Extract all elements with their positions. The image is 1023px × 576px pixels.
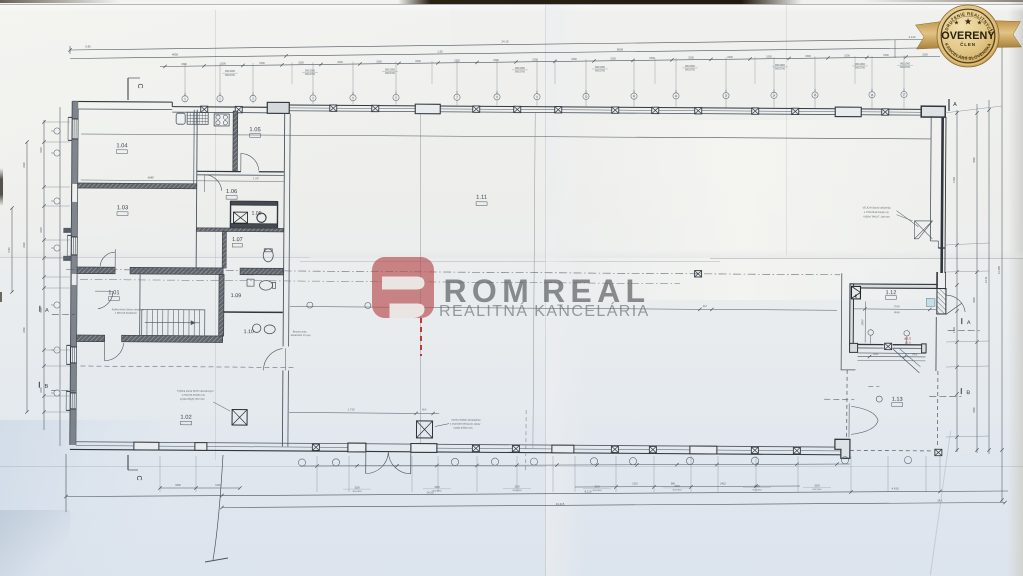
svg-text:1500: 1500 <box>766 55 772 58</box>
svg-text:1940: 1940 <box>873 353 879 356</box>
svg-text:1500: 1500 <box>649 57 655 60</box>
svg-text:900/2760: 900/2760 <box>515 70 526 73</box>
svg-text:2410: 2410 <box>720 483 726 486</box>
svg-text:ČLEN: ČLEN <box>960 41 976 47</box>
svg-text:1500: 1500 <box>298 61 304 64</box>
svg-text:24.10: 24.10 <box>502 40 509 44</box>
svg-text:1.10: 1.10 <box>244 329 254 335</box>
svg-text:VISKA TAVLIT 100 mm: VISKA TAVLIT 100 mm <box>863 214 890 218</box>
svg-text:1.13: 1.13 <box>892 397 903 403</box>
svg-text:vyska tehliet mm: vyska tehliet mm <box>453 426 472 430</box>
svg-text:1.02: 1.02 <box>180 415 191 421</box>
svg-text:keramicke 10 mm: keramicke 10 mm <box>291 334 311 337</box>
svg-text:900/2760: 900/2760 <box>595 70 606 73</box>
svg-text:1500: 1500 <box>805 55 811 58</box>
svg-text:900/1960: 900/1960 <box>752 489 762 491</box>
svg-text:1800: 1800 <box>175 484 181 487</box>
svg-text:1500: 1500 <box>454 59 460 62</box>
svg-text:murivo lepiaci prestavkov: murivo lepiaci prestavkov <box>452 418 482 422</box>
svg-text:1500: 1500 <box>532 58 538 61</box>
svg-text:1.11: 1.11 <box>476 195 487 201</box>
svg-text:C: C <box>136 83 143 88</box>
svg-text:1500: 1500 <box>434 486 440 489</box>
svg-text:3636: 3636 <box>894 310 900 314</box>
svg-text:1500: 1500 <box>259 62 265 65</box>
svg-text:900/2760: 900/2760 <box>685 69 696 72</box>
svg-text:960/1960: 960/1960 <box>775 64 786 67</box>
svg-text:960/1960: 960/1960 <box>385 68 396 71</box>
svg-text:5680: 5680 <box>973 157 976 163</box>
svg-text:2.860: 2.860 <box>953 326 956 333</box>
svg-text:OVERENÝ: OVERENÝ <box>941 29 995 42</box>
svg-text:1210: 1210 <box>632 483 638 486</box>
svg-text:2440: 2440 <box>23 162 26 168</box>
svg-text:B: B <box>966 390 970 396</box>
svg-text:1.12: 1.12 <box>886 290 897 296</box>
svg-text:900/1960: 900/1960 <box>512 490 522 492</box>
svg-text:1.09: 1.09 <box>231 293 242 299</box>
svg-text:1500: 1500 <box>610 57 616 60</box>
svg-text:1500: 1500 <box>844 54 850 57</box>
svg-text:8.110: 8.110 <box>585 490 592 494</box>
svg-text:1.08: 1.08 <box>251 211 261 217</box>
svg-text:1000: 1000 <box>912 353 918 356</box>
svg-text:★: ★ <box>954 20 960 27</box>
svg-text:1.50: 1.50 <box>253 176 259 180</box>
svg-text:2860: 2860 <box>860 319 864 325</box>
svg-text:1.50: 1.50 <box>437 50 443 54</box>
svg-text:900/2760: 900/2760 <box>855 67 866 70</box>
svg-text:2440: 2440 <box>23 327 26 333</box>
svg-text:1500: 1500 <box>883 54 889 57</box>
svg-text:900/2760: 900/2760 <box>385 72 396 75</box>
svg-text:vyska Skrytý 300 mm: vyska Skrytý 300 mm <box>180 397 205 401</box>
svg-text:1500: 1500 <box>415 60 421 63</box>
svg-text:960/1960: 960/1960 <box>855 63 866 66</box>
svg-text:1500: 1500 <box>571 58 577 61</box>
svg-text:VEJCIA Sachy delizenia: VEJCIA Sachy delizenia <box>863 205 891 209</box>
svg-text:900/1960: 900/1960 <box>672 490 682 492</box>
svg-text:4.410: 4.410 <box>892 487 899 491</box>
svg-text:1 PALIVA 60x60 mm: 1 PALIVA 60x60 mm <box>181 393 205 397</box>
svg-text:5680: 5680 <box>973 297 976 303</box>
svg-text:3.395: 3.395 <box>953 176 956 183</box>
svg-text:1500: 1500 <box>514 486 520 489</box>
svg-text:1500: 1500 <box>40 147 43 153</box>
svg-text:1500: 1500 <box>354 486 360 489</box>
svg-text:A: A <box>45 308 49 314</box>
svg-text:14.10: 14.10 <box>984 276 988 283</box>
svg-text:1.03: 1.03 <box>117 205 128 211</box>
svg-text:5.80: 5.80 <box>7 247 11 253</box>
svg-text:B: B <box>44 384 48 390</box>
svg-text:900/2760: 900/2760 <box>225 74 236 77</box>
svg-text:900/1960: 900/1960 <box>812 489 822 491</box>
svg-text:960/1960: 960/1960 <box>595 66 606 69</box>
svg-text:1500: 1500 <box>376 60 382 63</box>
svg-text:s murovke tehlovom oprav: s murovke tehlovom oprav <box>450 422 481 426</box>
svg-text:4880: 4880 <box>148 175 155 179</box>
svg-text:900/1960: 900/1960 <box>592 490 602 492</box>
svg-text:1.715: 1.715 <box>348 407 355 411</box>
svg-text:960/1960: 960/1960 <box>225 70 236 73</box>
svg-text:Krytina siena Skrim obvodovy: Krytina siena Skrim obvodovym <box>177 389 213 393</box>
svg-text:900/2760: 900/2760 <box>305 73 316 76</box>
svg-text:960/1960: 960/1960 <box>685 65 696 68</box>
svg-text:1500: 1500 <box>40 387 43 393</box>
svg-text:★: ★ <box>977 20 983 27</box>
svg-text:1500: 1500 <box>727 56 733 59</box>
svg-text:2550: 2550 <box>894 304 900 308</box>
svg-text:2440: 2440 <box>23 242 26 248</box>
svg-text:4850: 4850 <box>172 53 179 57</box>
svg-text:980: 980 <box>671 483 676 486</box>
svg-text:960/1960: 960/1960 <box>515 67 526 70</box>
svg-text:1 POLOHA 60x60 cm: 1 POLOHA 60x60 cm <box>864 210 889 214</box>
svg-text:1500: 1500 <box>220 62 226 65</box>
svg-text:900/1960: 900/1960 <box>432 491 442 493</box>
svg-text:5680: 5680 <box>973 407 976 413</box>
svg-text:24.415: 24.415 <box>556 502 565 506</box>
svg-text:1500: 1500 <box>40 307 43 313</box>
svg-text:15.485: 15.485 <box>997 265 1001 273</box>
svg-text:8000: 8000 <box>617 48 624 52</box>
svg-text:1.06: 1.06 <box>226 189 237 195</box>
svg-text:1 PALIVA 60x60mm: 1 PALIVA 60x60mm <box>115 312 137 315</box>
svg-text:1500: 1500 <box>40 227 43 233</box>
svg-text:A: A <box>953 102 957 108</box>
svg-text:900/1960: 900/1960 <box>352 491 362 493</box>
svg-text:1500: 1500 <box>688 56 694 59</box>
svg-text:C: C <box>135 475 142 480</box>
svg-text:1.07: 1.07 <box>232 237 243 243</box>
svg-text:960/1960: 960/1960 <box>305 69 316 72</box>
svg-text:1.01: 1.01 <box>108 290 119 296</box>
svg-text:A: A <box>967 320 971 326</box>
svg-text:1500: 1500 <box>493 59 499 62</box>
svg-text:18.3: 18.3 <box>905 341 911 345</box>
svg-text:1500: 1500 <box>814 485 820 488</box>
svg-text:1.05: 1.05 <box>249 127 260 133</box>
svg-text:900/2760: 900/2760 <box>775 67 786 70</box>
svg-text:1.04: 1.04 <box>116 143 128 149</box>
svg-text:14.20: 14.20 <box>427 491 434 495</box>
svg-text:★: ★ <box>964 17 972 27</box>
svg-text:5.80: 5.80 <box>85 45 91 49</box>
svg-text:1500: 1500 <box>181 63 187 66</box>
svg-text:24.1: 24.1 <box>937 499 943 503</box>
svg-text:1415: 1415 <box>215 484 221 487</box>
svg-text:850: 850 <box>422 407 427 411</box>
svg-text:1500: 1500 <box>337 61 343 64</box>
